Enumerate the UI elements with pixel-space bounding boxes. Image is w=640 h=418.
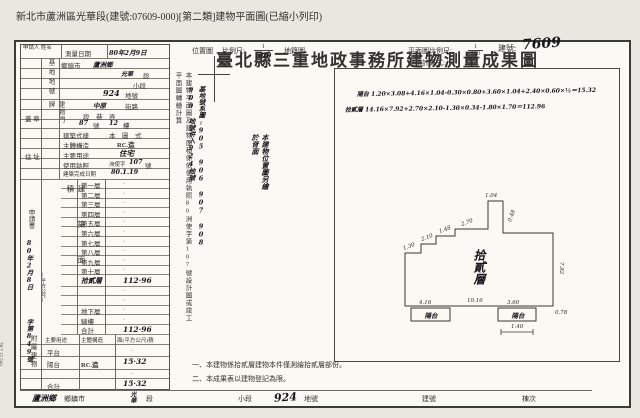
completion-value: 80.1.19 — [111, 168, 138, 176]
parcel-merge-note: 基地號系圖:905 906 907 908 909 地號併入924地號 — [192, 86, 206, 266]
footer-subsection-label: 小段 — [238, 396, 252, 403]
application-date: 80年2月8日 — [24, 239, 34, 315]
floor-value: 112·96 — [123, 276, 152, 285]
footer-section-label: 段 — [146, 396, 153, 403]
license-prefix: 洲使字 — [109, 160, 126, 168]
plan-floor-label: 拾貳層 — [471, 249, 488, 301]
survey-date-label: 測量日期 — [65, 48, 91, 58]
table-gridline — [77, 179, 78, 334]
dim-label: 1.04 — [485, 193, 497, 199]
plan-scale-denominator: 200 — [468, 51, 483, 57]
scale-denominator: 500 — [254, 51, 273, 60]
footer-building-label: 建號 — [422, 396, 436, 403]
footer-parcel-hand: 924 — [274, 390, 298, 405]
crosshair-horizontal-line — [198, 74, 230, 75]
address-label: 住 址 — [25, 155, 40, 162]
section-value: 光華 — [121, 69, 133, 78]
note-2: 二、本成果表以建物登記為限。 — [192, 376, 290, 383]
floor-value: · — [123, 180, 125, 187]
table-gridline — [79, 334, 80, 391]
footer-separator-line — [20, 390, 592, 391]
floor-value: · — [123, 297, 125, 304]
building-outline-drawing — [335, 69, 619, 361]
attached-area: 15·32 — [123, 379, 147, 388]
attached-h1: 主要用途 — [45, 336, 67, 344]
attached-area: 15·32 — [123, 357, 147, 366]
footer-parcel-label: 地號 — [304, 396, 318, 403]
attached-area: · — [131, 370, 133, 377]
scanned-document-page: { "page": { "print_header": "新北市蘆洲區光華段(建… — [0, 0, 640, 418]
table-gridline — [107, 45, 108, 58]
attached-use: 陽台 — [47, 359, 60, 369]
footer-section-hand: 光華 — [128, 391, 137, 409]
parcel-value: 924 — [103, 88, 120, 98]
dim-label: 0.78 — [555, 310, 567, 316]
plate-no2: 12 — [109, 119, 118, 127]
left-balcony-label: 陽台 — [415, 310, 447, 320]
right-balcony-label: 陽台 — [502, 310, 534, 320]
area-calc-label: 面積計算式: — [408, 60, 445, 67]
survey-date-value: 80年2月9日 — [109, 47, 147, 57]
crosshair-vertical-line — [214, 56, 215, 102]
print-header-caption: 新北市蘆洲區光華段(建號:07609-000)[第二類]建物平面圖(已縮小列印) — [16, 8, 322, 23]
seal-label: 蓋 章 — [25, 117, 40, 124]
dim-label: 10.16 — [467, 298, 483, 304]
footer-township-hand: 蘆洲鄉 — [32, 393, 56, 404]
dim-label: 7.92 — [558, 262, 564, 274]
scale-numerator: 1 — [254, 44, 273, 51]
floor-value: · — [123, 190, 125, 197]
floor-value: · — [123, 306, 125, 313]
site-section-label: 基地地號 — [45, 59, 55, 101]
table-gridline — [59, 58, 60, 179]
cadastre-map-label: 地籍圖 — [284, 48, 305, 55]
footer-unit-label: 棟次 — [522, 396, 536, 403]
floor-plan-box: 陽台 1.20×3.08+4.16×1.04-0.30×0.80+3.60×1.… — [334, 68, 620, 362]
table-gridline — [115, 334, 116, 391]
floor-value: · — [123, 228, 125, 235]
location-scale-label: 比例尺: — [222, 48, 245, 55]
license-no: 107 — [129, 158, 143, 166]
location-map-hand-note: 本建物位置圖另繪於背面 — [242, 134, 270, 192]
plan-scale-fraction: 1 200 — [468, 44, 483, 57]
floor-value: · — [123, 247, 125, 254]
plan-scale-label: 平面圖比例尺: — [408, 48, 452, 55]
floor-value: · — [123, 316, 125, 323]
plan-scale-numerator: 1 — [468, 44, 483, 51]
location-scale-fraction: 1 500 — [254, 44, 273, 60]
application-label: 申請書 — [25, 209, 35, 233]
floor-value: · — [123, 218, 125, 225]
print-code: 78.7.15,500 — [0, 342, 2, 366]
survey-date-row: 申請人 姓名 測量日期 80年2月9日 — [21, 45, 169, 59]
attached-h3: 面(平方公尺)積 — [117, 336, 154, 344]
dim-label: 1.40 — [511, 324, 523, 330]
building-no-label: 建號: — [498, 45, 516, 53]
attached-structure: RC.造 — [81, 359, 99, 369]
note-1: 一、本建物係拾貳層建物本件僅測繪拾貳層部份。 — [192, 362, 346, 369]
table-gridline — [105, 179, 106, 334]
left-data-table: 申請人 姓名 測量日期 80年2月9日 鄉鎮市 蘆洲鄉 光華 段 小段 924 … — [20, 44, 170, 390]
floor-value: · — [123, 287, 125, 294]
survey-form-sheet: 臺北縣三重地政事務所建物測量成果圖 建號: 7609 申請人 姓名 測量日期 8… — [14, 40, 631, 408]
plate-no1: 87 — [79, 119, 88, 127]
application-no: 字第849號 — [24, 319, 34, 375]
location-map-label: 位置圖 — [192, 48, 213, 55]
footer-township-label: 鄉鎮市 — [64, 396, 85, 403]
floor-value: · — [123, 199, 125, 206]
table-gridline — [41, 58, 42, 391]
attached-h2: 主體構造 — [81, 336, 103, 344]
applicant-label: 申請人 姓名 — [23, 45, 59, 51]
floor-value: · — [123, 266, 125, 273]
floor-value: · — [123, 238, 125, 245]
table-gridline — [61, 45, 62, 58]
attached-area: · — [131, 347, 133, 354]
dim-label: 4.16 — [419, 300, 431, 306]
area-section-label: 建築面積 — [65, 185, 87, 315]
building-no-value: 7609 — [521, 35, 561, 54]
floor-value: · — [123, 209, 125, 216]
floor-value: · — [123, 257, 125, 264]
dim-label: 3.60 — [507, 300, 519, 306]
plate-section-label: 建物門牌 — [45, 101, 65, 129]
attached-row-balcony: 陽台 RC.造 15·32 — [21, 356, 169, 370]
completion-label: 建築完成日期 — [63, 170, 96, 178]
